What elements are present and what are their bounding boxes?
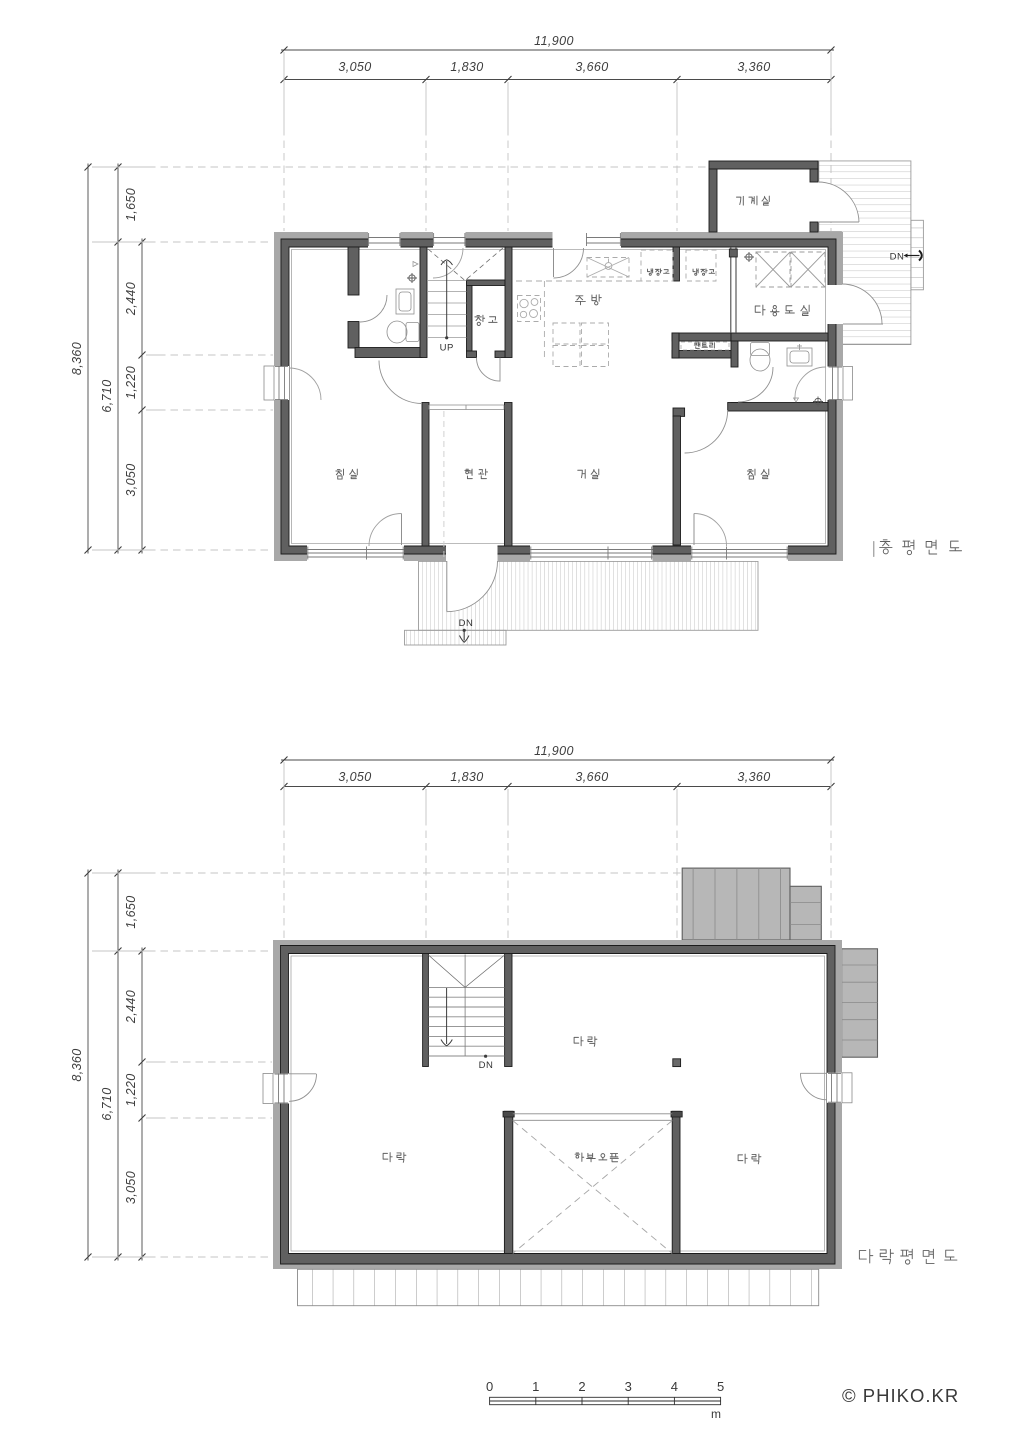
svg-text:1,220: 1,220 (124, 366, 138, 399)
svg-text:1: 1 (532, 1379, 539, 1394)
svg-text:m: m (711, 1407, 721, 1421)
svg-text:DN: DN (890, 252, 905, 263)
svg-text:11,900: 11,900 (534, 34, 574, 48)
svg-text:2,440: 2,440 (124, 990, 138, 1024)
svg-text:1,220: 1,220 (124, 1073, 138, 1106)
svg-text:© PHIKO.KR: © PHIKO.KR (842, 1385, 959, 1406)
svg-text:2: 2 (578, 1379, 585, 1394)
svg-text:11,900: 11,900 (534, 744, 574, 758)
svg-text:0: 0 (486, 1379, 493, 1394)
svg-text:3,360: 3,360 (737, 770, 770, 784)
svg-text:UP: UP (440, 343, 454, 354)
svg-text:3,050: 3,050 (338, 60, 371, 74)
svg-text:4: 4 (671, 1379, 678, 1394)
svg-text:6,710: 6,710 (100, 379, 114, 412)
svg-text:3,660: 3,660 (575, 770, 608, 784)
svg-text:DN: DN (459, 618, 474, 629)
svg-text:3: 3 (625, 1379, 632, 1394)
svg-text:5: 5 (717, 1379, 724, 1394)
svg-text:3,660: 3,660 (575, 60, 608, 74)
svg-text:8,360: 8,360 (70, 342, 84, 375)
svg-text:3,050: 3,050 (124, 463, 138, 496)
svg-text:3,050: 3,050 (124, 1171, 138, 1204)
svg-text:2,440: 2,440 (124, 282, 138, 316)
svg-text:DN: DN (479, 1060, 494, 1071)
svg-text:1,650: 1,650 (124, 895, 138, 928)
svg-text:3,360: 3,360 (737, 60, 770, 74)
svg-text:1,830: 1,830 (450, 770, 483, 784)
svg-text:3,050: 3,050 (338, 770, 371, 784)
svg-text:1,830: 1,830 (450, 60, 483, 74)
svg-text:8,360: 8,360 (70, 1048, 84, 1081)
svg-text:1,650: 1,650 (124, 188, 138, 221)
svg-text:6,710: 6,710 (100, 1087, 114, 1120)
